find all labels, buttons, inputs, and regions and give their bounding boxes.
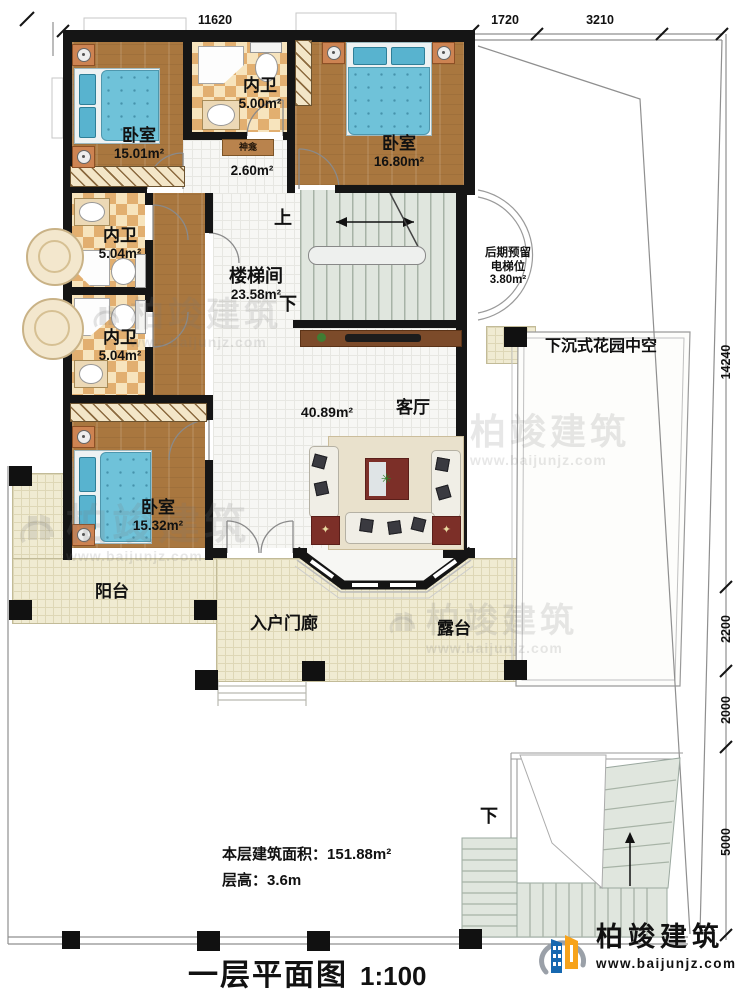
toilet-low-bath xyxy=(111,304,136,331)
note-area-label: 本层建筑面积： xyxy=(222,846,327,863)
wardrobe-tl xyxy=(70,166,185,187)
column xyxy=(307,931,330,951)
room-label-bath-mid: 内卫5.04m² xyxy=(84,226,156,262)
wall-entry-b xyxy=(293,548,307,558)
column xyxy=(195,670,218,690)
nightstand xyxy=(72,146,95,168)
wall-bl-right-b xyxy=(205,460,213,560)
sink-tray xyxy=(74,360,108,388)
column xyxy=(62,931,80,949)
room-label-living: 客厅 xyxy=(390,398,436,418)
note-area-value: 151.88m² xyxy=(327,846,391,863)
plan-notes: 本层建筑面积：151.88m² 层高：3.6m xyxy=(222,842,391,895)
floor-plan: 神龛 ✳ ✦ ✦ 柏竣建筑 www.baijunjz.com 柏竣建筑 www.… xyxy=(0,0,750,997)
room-label-elevator: 后期预留 电梯位 3.80m² xyxy=(468,247,548,288)
column xyxy=(194,600,217,620)
room-label-porch: 入户门廊 xyxy=(236,614,332,634)
shrine-shelf: 神龛 xyxy=(222,139,274,156)
plant-icon xyxy=(317,333,326,342)
note-height-label: 层高： xyxy=(222,872,267,889)
room-label-shrine-area: 2.60m² xyxy=(224,163,280,179)
wall-bl-top xyxy=(63,395,213,403)
side-table: ✦ xyxy=(432,516,461,545)
wall-tl-bath xyxy=(183,30,192,140)
nightstand xyxy=(322,42,345,64)
nightstand xyxy=(72,44,95,66)
room-label-bedroom-bl: 卧室15.32m² xyxy=(112,498,204,534)
round-bathtub xyxy=(22,298,84,360)
wall-right-upper xyxy=(464,30,475,195)
wall-left xyxy=(63,30,72,560)
wall-baths-divider xyxy=(63,287,153,295)
brand-name: 柏竣建筑 xyxy=(596,924,737,951)
plan-title: 一层平面图1:100 xyxy=(186,950,437,997)
wall-baths-right-a xyxy=(145,193,153,205)
outdoor-stair xyxy=(462,753,683,937)
column xyxy=(9,600,32,620)
room-label-garden: 下沉式花园中空 xyxy=(534,338,668,357)
column xyxy=(459,929,482,949)
bed-tr xyxy=(346,42,432,136)
stair-up-label: 上 xyxy=(274,208,292,229)
sunken-garden-outline xyxy=(512,332,690,686)
wall-entry-a xyxy=(205,548,227,558)
column xyxy=(197,931,220,951)
wall-top xyxy=(63,30,473,42)
tv-screen xyxy=(345,334,421,342)
stair-down-label: 下 xyxy=(279,294,297,315)
coffee-table: ✳ xyxy=(365,458,409,500)
nightstand xyxy=(72,426,95,448)
dim-top-right-2: 3210 xyxy=(574,13,626,27)
toilet-mid-bath xyxy=(111,258,136,285)
dim-right-4: 5000 xyxy=(719,816,733,868)
column xyxy=(504,327,527,347)
plant-icon: ✳ xyxy=(381,472,394,485)
sink-tray xyxy=(74,198,110,226)
wall-corridor-stub xyxy=(205,193,213,233)
tv-cabinet xyxy=(300,330,462,347)
column xyxy=(9,466,32,486)
dim-right-3: 2000 xyxy=(719,684,733,736)
dim-right-2: 2200 xyxy=(719,603,733,655)
porch-steps xyxy=(218,680,306,706)
wall-stair-right xyxy=(456,188,467,328)
outdoor-stair-down-label: 下 xyxy=(480,806,498,827)
plan-scale: 1:100 xyxy=(360,961,427,991)
wall-stair-bottom xyxy=(293,320,464,328)
dim-top-right-1: 1720 xyxy=(479,13,531,27)
room-label-balcony: 阳台 xyxy=(86,582,138,602)
brand-url: www.baijunjz.com xyxy=(596,956,737,971)
brand-logo-icon xyxy=(536,924,588,982)
dim-right-total: 14240 xyxy=(719,336,733,388)
toilet-tank xyxy=(250,42,282,53)
brand-logo: 柏竣建筑 www.baijunjz.com xyxy=(536,924,737,982)
room-label-bath-top: 内卫5.00m² xyxy=(222,76,298,112)
note-height-value: 3.6m xyxy=(267,872,301,889)
room-label-terrace: 露台 xyxy=(428,619,480,639)
column xyxy=(302,661,325,681)
wall-tr-bottom xyxy=(335,185,475,193)
column xyxy=(504,660,527,680)
stair-landing-rail xyxy=(308,246,426,265)
nightstand xyxy=(72,524,95,546)
side-table: ✦ xyxy=(311,516,340,545)
nightstand xyxy=(432,42,455,64)
room-label-bedroom-tl: 卧室15.01m² xyxy=(96,126,182,162)
plan-title-text: 一层平面图 xyxy=(188,959,348,992)
round-bathtub xyxy=(26,228,84,286)
room-label-bath-low: 内卫5.04m² xyxy=(84,328,156,364)
room-label-bedroom-tr: 卧室16.80m² xyxy=(356,134,442,170)
dim-top: 11620 xyxy=(183,13,247,27)
wardrobe-bl xyxy=(70,403,207,422)
room-label-living-area: 40.89m² xyxy=(296,404,358,421)
